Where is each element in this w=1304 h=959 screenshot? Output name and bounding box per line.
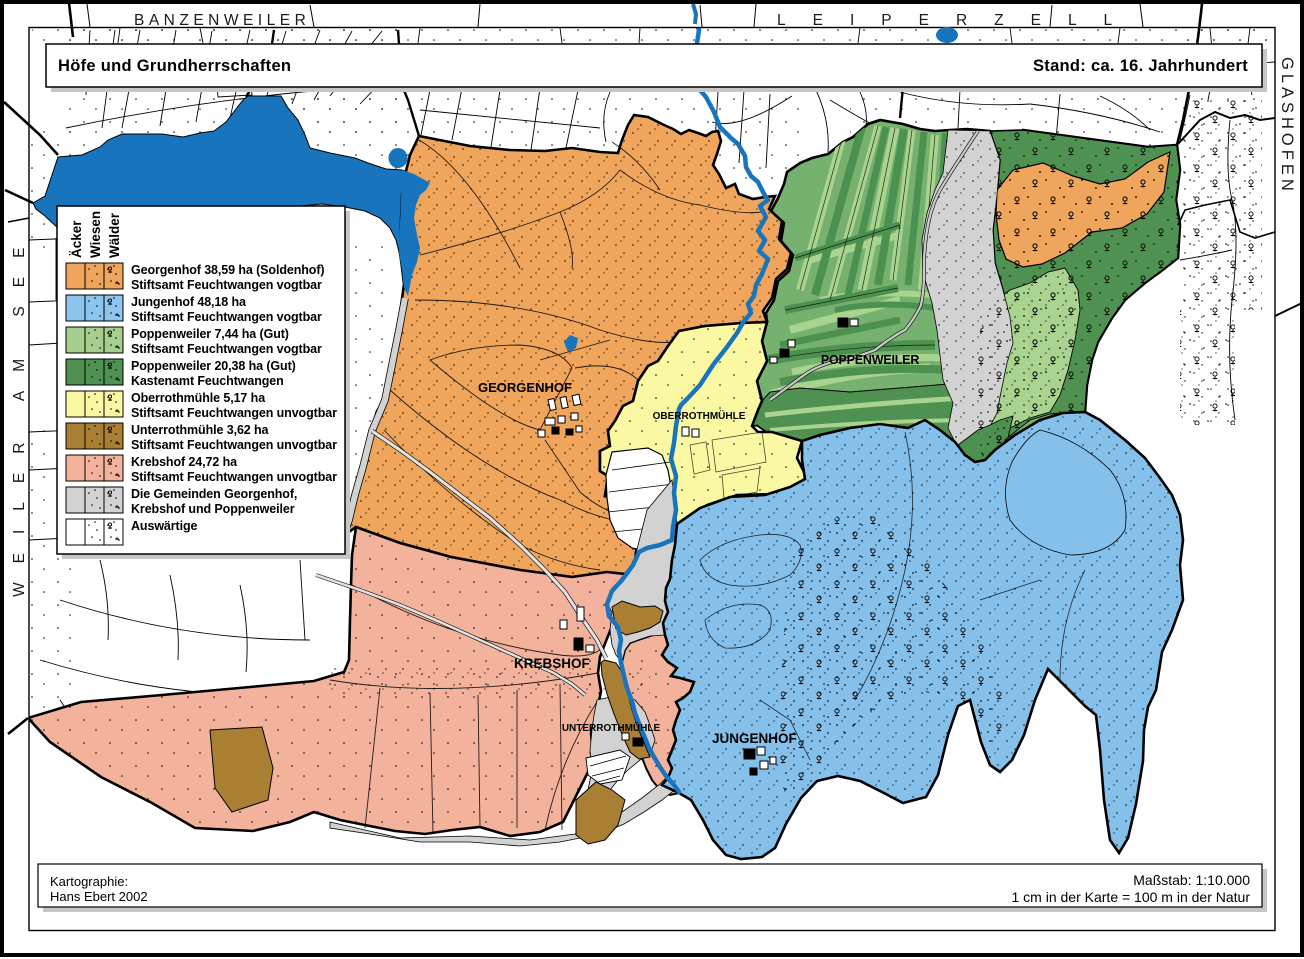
svg-text:Oberrothmühle 5,17 ha: Oberrothmühle 5,17 ha (131, 391, 266, 405)
svg-text:1 cm in der Karte = 100 m in d: 1 cm in der Karte = 100 m in der Natur (1012, 889, 1251, 905)
svg-text:Maßstab: 1:10.000: Maßstab: 1:10.000 (1133, 872, 1250, 888)
svg-text:Georgenhof 38,59 ha (Soldenhof: Georgenhof 38,59 ha (Soldenhof) (131, 263, 324, 277)
svg-text:Stiftsamt Feuchtwangen vogtbar: Stiftsamt Feuchtwangen vogtbar (131, 278, 322, 292)
svg-text:Auswärtige: Auswärtige (131, 519, 198, 533)
svg-text:GLASHOFEN: GLASHOFEN (1278, 57, 1296, 195)
svg-text:OBERROTHMÜHLE: OBERROTHMÜHLE (653, 409, 746, 422)
svg-text:LEIPERZELL: LEIPERZELL (777, 12, 1139, 29)
svg-text:Poppenweiler 20,38 ha (Gut): Poppenweiler 20,38 ha (Gut) (131, 359, 296, 373)
svg-text:Wälder: Wälder (107, 212, 122, 258)
svg-text:Die Gemeinden Georgenhof,: Die Gemeinden Georgenhof, (131, 487, 297, 501)
svg-text:Krebshof und Poppenweiler: Krebshof und Poppenweiler (131, 502, 295, 516)
svg-text:Poppenweiler 7,44 ha (Gut): Poppenweiler 7,44 ha (Gut) (131, 327, 289, 341)
svg-text:Stiftsamt Feuchtwangen unvogtb: Stiftsamt Feuchtwangen unvogtbar (131, 406, 337, 420)
svg-text:Krebshof 24,72 ha: Krebshof 24,72 ha (131, 455, 238, 469)
svg-text:BANZENWEILER: BANZENWEILER (134, 12, 310, 29)
svg-text:Kastenamt Feuchtwangen: Kastenamt Feuchtwangen (131, 374, 284, 388)
svg-text:Unterrothmühle 3,62 ha: Unterrothmühle 3,62 ha (131, 423, 270, 437)
svg-text:Hans Ebert 2002: Hans Ebert 2002 (50, 889, 148, 904)
svg-text:Kartographie:: Kartographie: (50, 874, 128, 889)
svg-text:POPPENWEILER: POPPENWEILER (821, 353, 919, 367)
svg-text:Jungenhof 48,18 ha: Jungenhof 48,18 ha (131, 295, 247, 309)
svg-text:KREBSHOF: KREBSHOF (514, 656, 590, 671)
svg-text:JUNGENHOF: JUNGENHOF (712, 731, 797, 746)
svg-text:Stand: ca. 16. Jahrhundert: Stand: ca. 16. Jahrhundert (1033, 57, 1248, 75)
svg-text:Höfe und Grundherrschaften: Höfe und Grundherrschaften (58, 57, 291, 75)
svg-text:WEILER AM SEE: WEILER AM SEE (11, 229, 28, 597)
svg-text:UNTERROTHMÜHLE: UNTERROTHMÜHLE (562, 721, 661, 734)
svg-text:Stiftsamt Feuchtwangen vogtbar: Stiftsamt Feuchtwangen vogtbar (131, 342, 322, 356)
svg-text:GEORGENHOF: GEORGENHOF (478, 380, 572, 395)
svg-text:Stiftsamt Feuchtwangen vogtbar: Stiftsamt Feuchtwangen vogtbar (131, 310, 322, 324)
svg-text:Stiftsamt Feuchtwangen unvogtb: Stiftsamt Feuchtwangen unvogtbar (131, 438, 337, 452)
svg-text:Stiftsamt Feuchtwangen unvogtb: Stiftsamt Feuchtwangen unvogtbar (131, 470, 337, 484)
svg-text:Wiesen: Wiesen (88, 211, 103, 258)
svg-text:Äcker: Äcker (69, 220, 84, 258)
